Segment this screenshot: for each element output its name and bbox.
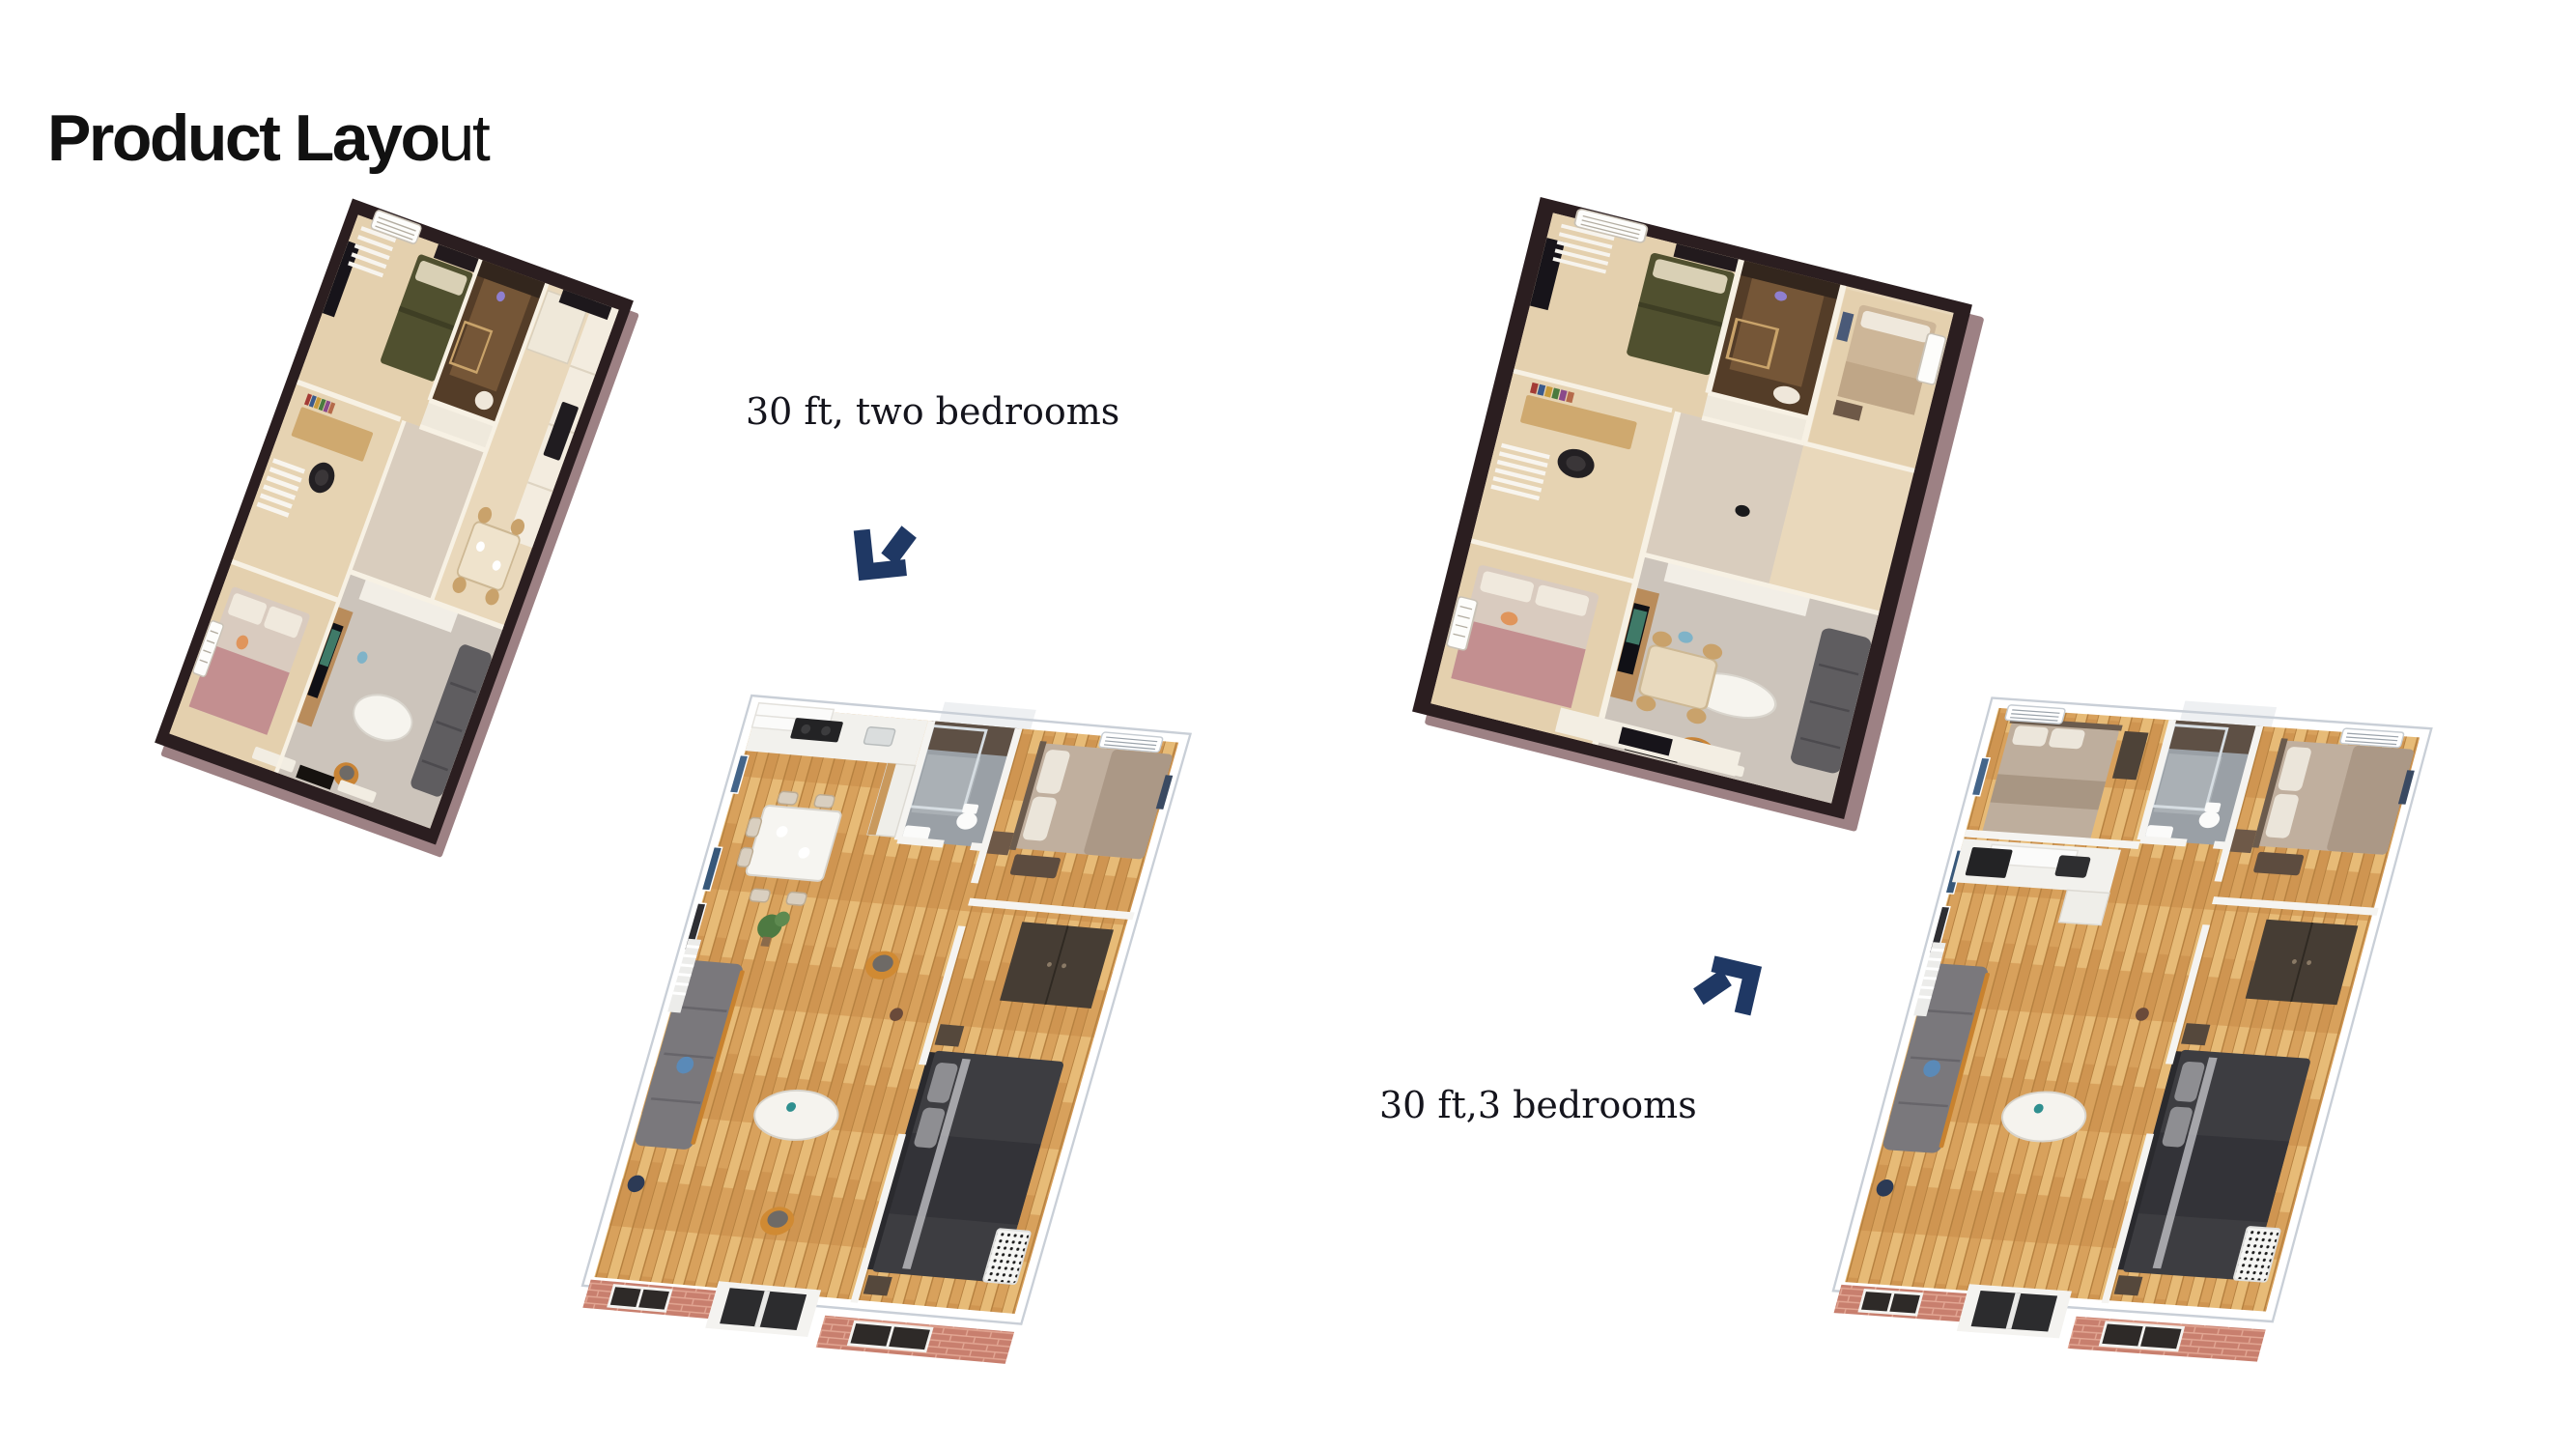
caption-two-bedrooms: 30 ft, two bedrooms — [746, 390, 1119, 433]
floorplan-two-bedrooms-top-view — [151, 199, 642, 859]
floorplans-graphic — [0, 0, 2576, 1449]
page-title: Product Layout — [47, 104, 488, 173]
arrow-down-left-icon — [854, 525, 920, 581]
slide-canvas: Product Layout 30 ft, two bedrooms 30 ft… — [0, 0, 2576, 1449]
page-title-regular-part: ut — [439, 101, 489, 175]
page-title-bold-part: Product Layo — [47, 101, 439, 175]
floorplan-two-bedrooms-isometric-view — [571, 685, 1193, 1364]
floorplan-three-bedrooms-top-view — [1410, 197, 1987, 832]
floorplan-three-bedrooms-isometric-view — [1823, 688, 2434, 1362]
caption-three-bedrooms: 30 ft,3 bedrooms — [1379, 1084, 1697, 1126]
arrow-up-right-icon — [1690, 952, 1762, 1015]
